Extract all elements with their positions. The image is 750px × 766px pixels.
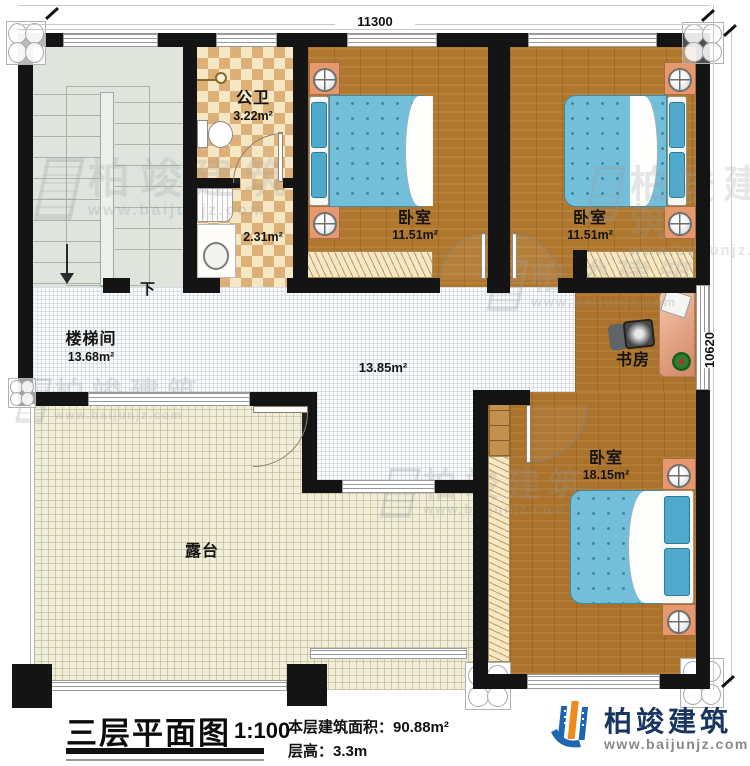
room-label-bedroom-right: 卧室 [559,211,621,228]
wall [293,47,308,293]
nightstand [309,206,340,239]
title-underline-thick [66,748,264,754]
room-label-bedroom-left: 卧室 [384,211,446,228]
wall [488,390,530,405]
terrace-column [12,664,52,708]
bed-blanket-fold [630,96,658,206]
wall [317,480,342,493]
bed-pillow [311,152,327,198]
toilet-bowl [208,121,233,148]
wall [158,33,216,47]
room-area-anteroom: 2.31m² [230,230,296,244]
wall-lamp-icon [215,72,227,84]
room-area-stairwell: 13.68m² [56,350,126,364]
nightstand [309,62,340,95]
room-area-bedroom-large: 18.15m² [570,468,642,482]
dimension-line [731,28,732,683]
sink-basin [203,242,229,270]
bed-pillow [311,102,327,148]
room-label-study: 书房 [605,353,661,370]
room-area-bedroom-right: 11.51m² [557,228,623,242]
window [527,674,660,689]
room-label-terrace: 露台 [162,544,242,561]
washing-machine [197,188,233,222]
stair-direction-arrowhead [60,273,74,284]
dimension-height: 10620 [702,332,717,368]
axis-tick [723,24,737,37]
wall [696,390,710,689]
window [88,392,250,406]
dimension-width: 11300 [335,14,415,29]
plan-scale: 1:100 [234,718,290,744]
wall [558,278,696,293]
stair-outline [66,86,150,286]
corner-post [6,21,46,65]
wardrobe [306,251,433,278]
terrace-column [287,664,327,706]
room-label-bathroom: 公卫 [222,91,284,108]
floor-area-label: 本层建筑面积： [288,719,393,736]
hallway-lobe-floor [313,392,473,480]
floor-height-label: 层高： [288,743,333,760]
dimension-line [18,5,710,6]
corner-post [8,378,36,408]
wall [437,33,528,47]
wall [283,178,293,188]
bed-pillow [669,152,685,198]
bed-pillow [664,496,690,544]
floor-plan-canvas: 柏竣建筑 www.baijunjz.com 柏竣建筑 www.baijunjz.… [0,0,750,766]
lamp-icon [668,212,692,236]
room-area-hallway: 13.85m² [346,360,420,375]
lamp-icon [667,464,691,488]
toilet-tank [197,120,208,148]
wall [183,278,220,293]
lamp-icon [667,610,691,634]
wall [103,278,130,293]
wall [473,674,527,689]
brand-website: www.baijunjz.com [604,736,749,752]
window [347,33,437,47]
title-underline-thin [66,759,264,761]
plant-icon [672,352,691,371]
wall [696,33,710,285]
wall [435,480,473,493]
wall [473,390,488,674]
nightstand [662,604,696,636]
floor-area-row: 本层建筑面积：90.88m² [288,716,449,737]
floor-height-row: 层高：3.3m [288,740,367,761]
wall [183,47,197,293]
wall [250,392,317,406]
window [63,33,158,47]
lamp-icon [313,68,337,92]
nightstand [664,206,696,239]
room-label-stairwell: 楼梯间 [55,332,127,349]
room-label-bedroom-large: 卧室 [575,451,637,468]
wardrobe [575,251,694,278]
wall [488,47,510,293]
wall [487,278,510,293]
bed-blanket-fold [628,491,662,603]
wall [660,674,710,689]
stair-direction-label: 下 [136,282,160,298]
stair-direction-line [66,244,68,274]
room-area-bathroom: 3.22m² [220,109,286,123]
wall [277,33,347,47]
wall [18,33,33,406]
door-leaf [253,406,308,413]
axis-tick [45,7,59,20]
terrace-left-edge [30,404,35,688]
window [342,480,435,493]
floor-height-value: 3.3m [333,743,367,760]
window [216,33,277,47]
brand-name: 柏竣建筑 [604,700,732,740]
nightstand [662,458,696,490]
bed-blanket-fold [405,96,433,206]
window [528,33,657,47]
bed-pillow [669,102,685,148]
floor-area-value: 90.88m² [393,719,449,736]
lamp-icon [668,68,692,92]
dimension-line [18,29,710,30]
bed-pillow [664,548,690,596]
lamp-icon [313,212,337,236]
brand-logo-icon [545,698,599,754]
terrace-railing [47,680,287,691]
nightstand [664,62,696,95]
wall [287,278,440,293]
plan-title: 三层平面图 [66,708,231,753]
terrace-railing [310,648,467,659]
room-area-bedroom-left: 11.51m² [382,228,448,242]
wardrobe [488,456,510,662]
computer-monitor-icon [623,319,656,350]
